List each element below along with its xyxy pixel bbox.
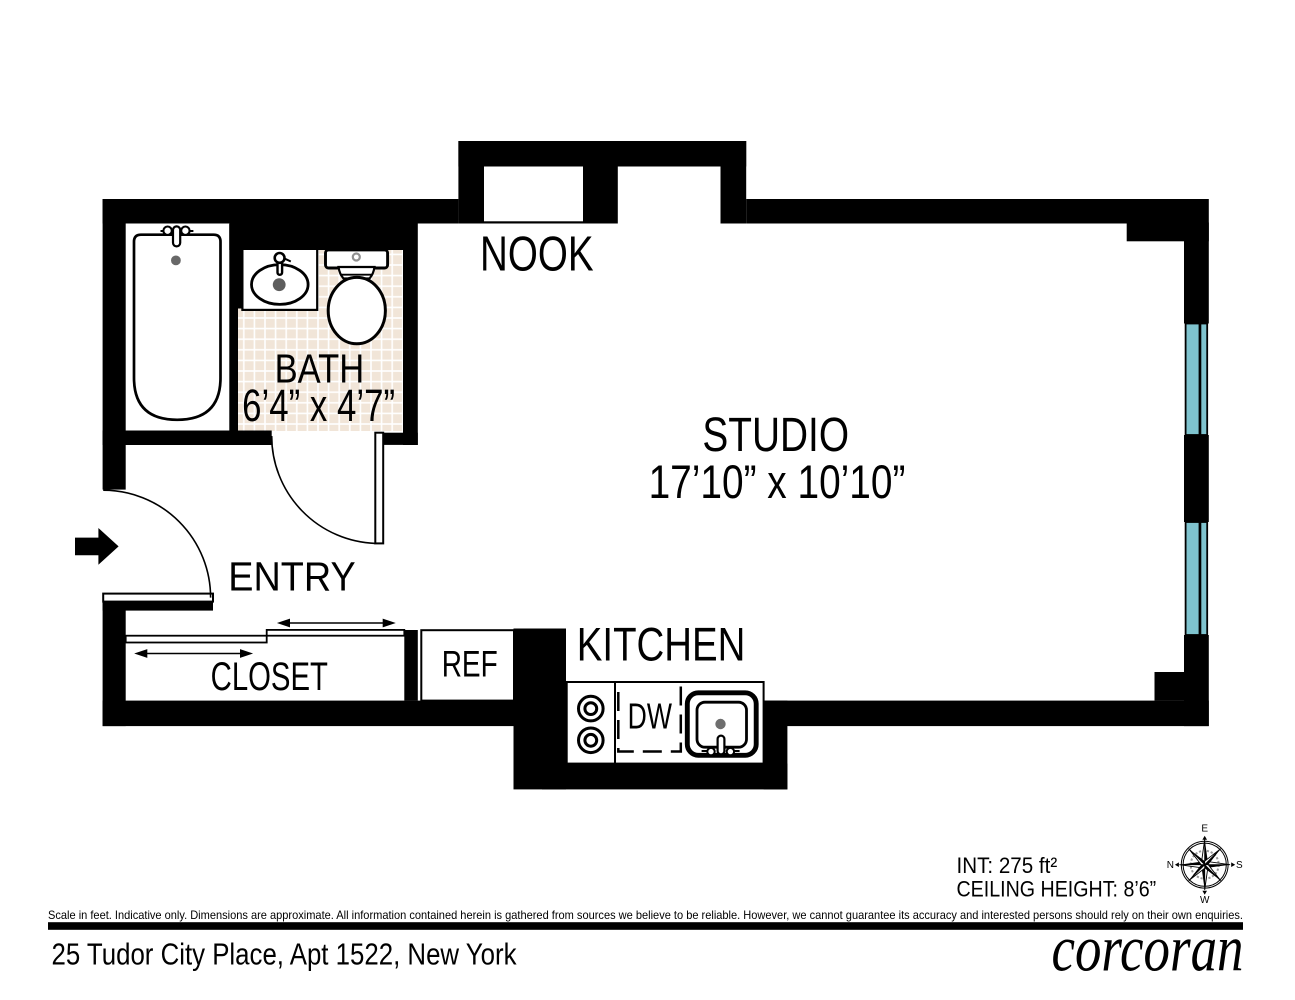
svg-text:STUDIO: STUDIO <box>702 409 849 462</box>
svg-text:S: S <box>1236 860 1243 871</box>
svg-text:corcoran: corcoran <box>1052 913 1244 986</box>
svg-text:REF: REF <box>442 642 498 684</box>
svg-text:17’10” x 10’10”: 17’10” x 10’10” <box>649 456 906 509</box>
svg-text:CEILING HEIGHT: 8’6”: CEILING HEIGHT: 8’6” <box>957 877 1157 902</box>
svg-text:N: N <box>1167 860 1174 871</box>
svg-text:INT: 275 ft²: INT: 275 ft² <box>957 853 1058 878</box>
svg-text:W: W <box>1200 895 1210 906</box>
svg-text:ENTRY: ENTRY <box>228 554 355 600</box>
svg-text:25 Tudor City Place, Apt 1522,: 25 Tudor City Place, Apt 1522, New York <box>52 937 517 972</box>
svg-text:E: E <box>1201 824 1208 835</box>
svg-text:KITCHEN: KITCHEN <box>577 619 746 672</box>
svg-text:CLOSET: CLOSET <box>211 655 328 699</box>
svg-text:DW: DW <box>628 696 673 737</box>
svg-text:6’4” x 4’7”: 6’4” x 4’7” <box>242 380 395 431</box>
svg-text:NOOK: NOOK <box>480 227 594 281</box>
